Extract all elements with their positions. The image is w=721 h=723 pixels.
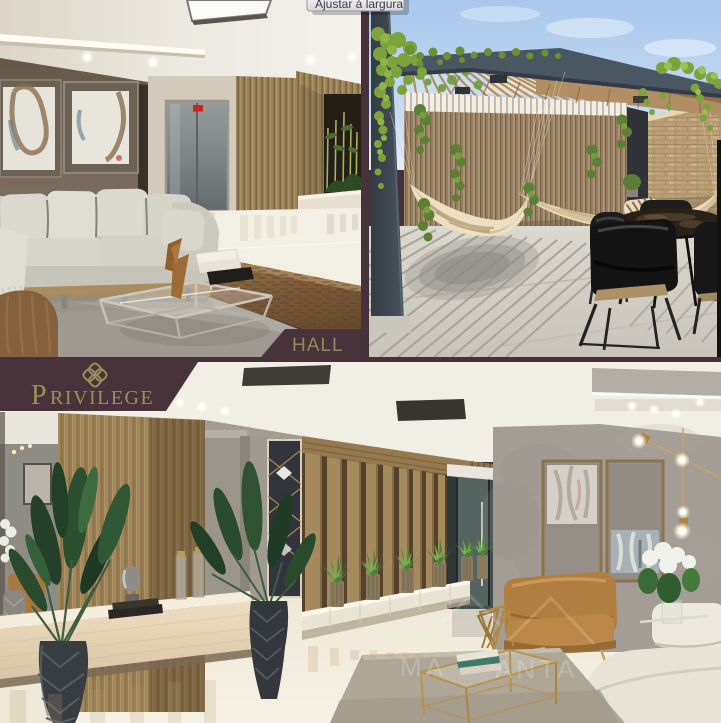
svg-text:MA: MA [400,652,447,682]
svg-text:RIVILEGE: RIVILEGE [50,387,154,409]
svg-text:HALL: HALL [292,335,344,356]
svg-text:ANTA: ANTA [495,654,578,684]
svg-text:Ajustar à largura: Ajustar à largura [315,0,403,11]
svg-text:P: P [31,380,47,411]
